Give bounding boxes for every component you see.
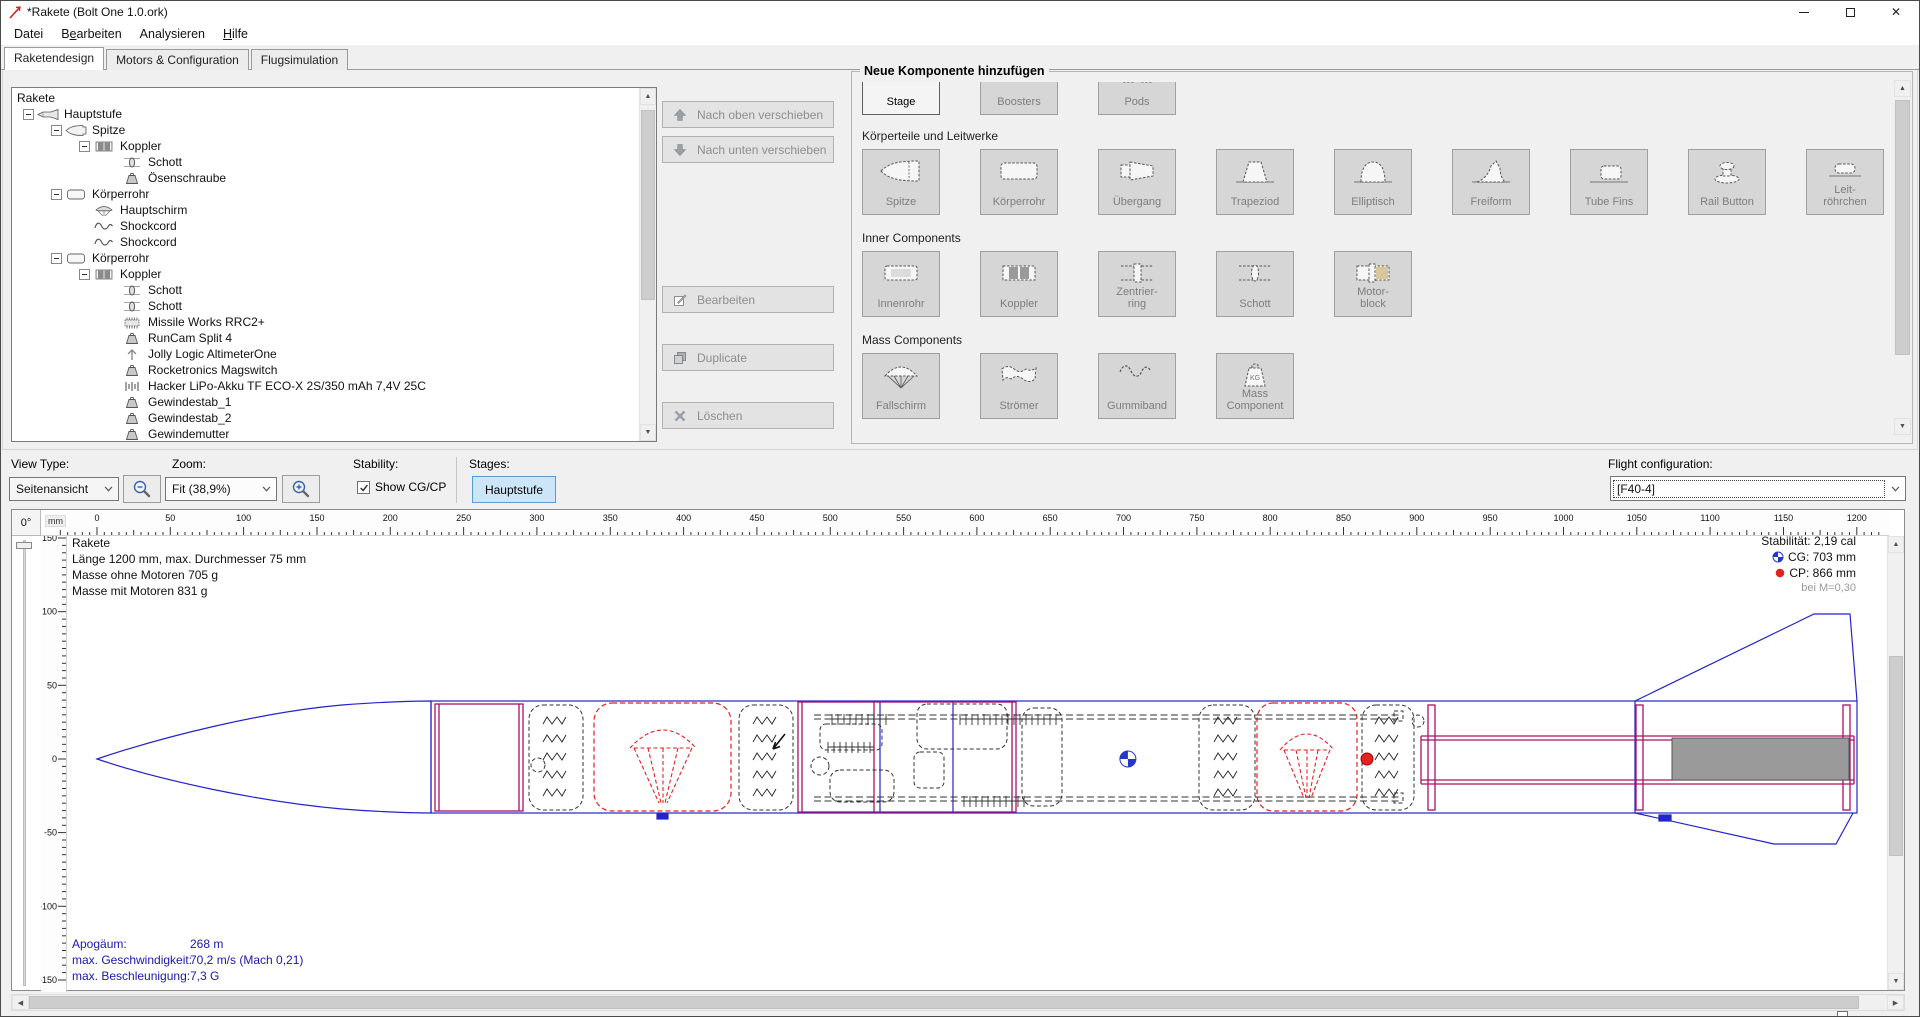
component-button-pods[interactable]: Pods (1098, 82, 1176, 115)
tree-item-gewindemutter[interactable]: Gewindemutter (13, 426, 638, 441)
openrocket-window: *Rakete (Bolt One 1.0.ork) ✕ DateiBearbe… (0, 0, 1920, 1017)
section-label-k-rperteile-und-leitwerke: Körperteile und Leitwerke (862, 129, 1890, 143)
tubefins-icon (1587, 156, 1631, 186)
stroem-icon (997, 360, 1041, 390)
rocket-info-line: Masse ohne Motoren 705 g (72, 568, 218, 582)
svg-text:150: 150 (42, 536, 57, 543)
tree-item-label: Hauptschirm (120, 203, 187, 217)
pods-icon (1115, 82, 1159, 86)
tree-item-k-rperrohr[interactable]: Körperrohr (13, 250, 638, 266)
up-icon (663, 108, 697, 122)
flight-stat-label: Apogäum: (72, 937, 127, 951)
mass-icon (121, 364, 143, 377)
component-button-label: Freiform (1471, 196, 1512, 209)
minimize-icon (1799, 12, 1809, 13)
boosters-icon (997, 82, 1041, 86)
view-type-label: View Type: (11, 457, 69, 471)
component-button-tube-fins[interactable]: Tube Fins (1570, 149, 1648, 215)
action-label: Duplicate (697, 351, 747, 365)
tree-item-schott[interactable]: Schott (13, 154, 638, 170)
svg-text:850: 850 (1336, 513, 1351, 523)
view-type-value: Seitenansicht (16, 482, 88, 496)
action-label: Nach unten verschieben (697, 143, 826, 157)
stability-value: Stabilität: 2,19 cal (1761, 534, 1856, 548)
tree-item-hauptschirm[interactable]: Hauptschirm (13, 202, 638, 218)
component-button-fallschirm[interactable]: Fallschirm (862, 353, 940, 419)
tree-item-label: Schott (148, 155, 182, 169)
close-icon: ✕ (1891, 6, 1901, 18)
tree-expander-icon[interactable] (79, 269, 90, 280)
svg-text:50: 50 (165, 513, 175, 523)
component-button-gummiband[interactable]: Gummiband (1098, 353, 1176, 419)
action-label: Nach oben verschieben (697, 108, 823, 122)
tree-item-label: Gewindemutter (148, 427, 229, 441)
mass-icon (121, 396, 143, 409)
checkbox-checked-icon (357, 481, 370, 494)
stability-label: Stability: (353, 457, 398, 471)
chevron-down-icon (262, 486, 271, 492)
component-button-koppler[interactable]: Koppler (980, 251, 1058, 317)
component-button-label: Gummiband (1107, 400, 1167, 413)
menu-datei[interactable]: Datei (5, 25, 52, 43)
zoom-label: Zoom: (172, 457, 206, 471)
cp-legend-icon (1775, 568, 1785, 578)
delete-icon (663, 409, 697, 423)
svg-text:0: 0 (52, 754, 57, 764)
horizontal-ruler: mm05010015020025030035040045050055060065… (41, 510, 1889, 536)
view-type-select[interactable]: Seitenansicht (9, 477, 119, 501)
component-button-label: Rail Button (1700, 196, 1754, 209)
cg-cp-markers (1120, 751, 1373, 767)
tree-item-hacker-lipo-akku-tf-eco-x-2s-350-mah-7-4v-25c[interactable]: Hacker LiPo-Akku TF ECO-X 2S/350 mAh 7,4… (13, 378, 638, 394)
tree-item-label: Shockcord (120, 235, 177, 249)
tab-flugsimulation[interactable]: Flugsimulation (251, 49, 348, 70)
svg-text:100: 100 (42, 607, 57, 617)
tree-item-spitze[interactable]: Spitze (13, 122, 638, 138)
koerperrohr-icon (997, 156, 1041, 186)
bodytube-icon (65, 252, 87, 265)
tab-raketendesign[interactable]: Raketendesign (4, 47, 104, 70)
tree-item-label: Koppler (120, 139, 161, 153)
maximize-icon (1846, 8, 1855, 17)
cg-legend-icon (1772, 551, 1784, 563)
tree-item-missile-works-rrc2[interactable]: Missile Works RRC2+ (13, 314, 638, 330)
svg-text:800: 800 (1263, 513, 1278, 523)
tree-scroll-down-icon[interactable]: ▼ (640, 424, 656, 441)
coupler-icon (93, 140, 115, 153)
tree-item-label: Hacker LiPo-Akku TF ECO-X 2S/350 mAh 7,4… (148, 379, 426, 393)
rocket-drawing (67, 536, 1889, 992)
shockcord-squiggles (543, 717, 1398, 796)
component-button-mass-component[interactable]: KGMass Component (1216, 353, 1294, 419)
tree-expander-icon[interactable] (51, 189, 62, 200)
tree-item-label: RunCam Split 4 (148, 331, 232, 345)
component-button-label: Tube Fins (1585, 196, 1634, 209)
mass-icon (121, 172, 143, 185)
tree-item-label: Koppler (120, 267, 161, 281)
cg-value: CG: 703 mm (1788, 550, 1856, 564)
action-duplicate-button[interactable]: Duplicate (662, 344, 834, 371)
flight-stat-value: 268 m (190, 937, 223, 951)
bulkhead-icon (121, 156, 143, 169)
gummi-icon (1115, 360, 1159, 390)
section-label-mass-components: Mass Components (862, 333, 1890, 347)
svg-text:550: 550 (896, 513, 911, 523)
mass-icon (121, 332, 143, 345)
component-button-label: Mass Component (1227, 388, 1284, 413)
zoom-in-button[interactable] (282, 475, 320, 503)
section-label-inner-components: Inner Components (862, 231, 1890, 245)
design-scroll-left-icon[interactable]: ◀ (12, 995, 29, 1010)
component-button-label: Motor- block (1357, 286, 1389, 311)
chevron-down-icon (1891, 486, 1900, 492)
stage-toggle-hauptstufe[interactable]: Hauptstufe (472, 476, 556, 503)
action-bearbeiten-button[interactable]: Bearbeiten (662, 286, 834, 313)
nosecone-icon (65, 124, 87, 137)
svg-text:0: 0 (94, 513, 99, 523)
tree-expander-icon[interactable] (23, 109, 34, 120)
mblock-icon (1351, 258, 1395, 288)
design-scroll-down-icon[interactable]: ▼ (1888, 973, 1904, 990)
uebergang-icon (1115, 156, 1159, 186)
component-button-innenrohr[interactable]: Innenrohr (862, 251, 940, 317)
tree-item-label: Körperrohr (92, 251, 149, 265)
svg-text:300: 300 (529, 513, 544, 523)
component-button-label: Trapeziod (1231, 196, 1280, 209)
tree-item-label: Schott (148, 299, 182, 313)
bulkhead-icon (121, 284, 143, 297)
zoom-out-icon (132, 479, 152, 499)
close-button[interactable]: ✕ (1873, 1, 1919, 23)
battery-icon (121, 380, 143, 393)
svg-text:-150: -150 (41, 975, 57, 985)
schottP-icon (1233, 258, 1277, 288)
zoom-out-button[interactable] (123, 475, 161, 503)
svg-text:KG: KG (1250, 375, 1260, 382)
component-button-label: Übergang (1113, 196, 1161, 209)
window-title: *Rakete (Bolt One 1.0.ork) (27, 5, 168, 19)
component-button-label: Schott (1239, 298, 1270, 311)
add-scroll-thumb[interactable] (1895, 100, 1910, 355)
tree-item-label: Gewindestab_2 (148, 411, 231, 425)
cp-value: CP: 866 mm (1789, 566, 1856, 580)
cp-marker (1361, 753, 1373, 765)
menu-bar: DateiBearbeitenAnalysierenHilfe (1, 23, 1919, 45)
svg-text:600: 600 (969, 513, 984, 523)
zoom-in-icon (291, 479, 311, 499)
tree-expander-icon[interactable] (79, 141, 90, 152)
tree-root-rakete[interactable]: Rakete (13, 90, 638, 106)
shockcord-icon (93, 236, 115, 249)
component-button-freiform[interactable]: Freiform (1452, 149, 1530, 215)
component-button-label: Zentrier- ring (1116, 286, 1158, 311)
tree-item-rocketronics-magswitch[interactable]: Rocketronics Magswitch (13, 362, 638, 378)
stages-label: Stages: (469, 457, 510, 471)
svg-text:900: 900 (1409, 513, 1424, 523)
show-cgcp-checkbox[interactable]: Show CG/CP (357, 480, 446, 494)
design-vscroll-thumb[interactable] (1889, 656, 1903, 856)
svg-text:100: 100 (236, 513, 251, 523)
tree-scrollbar[interactable]: ▲ ▼ (639, 88, 656, 441)
add-panel-title: Neue Komponente hinzufügen (860, 64, 1049, 78)
component-button-spitze[interactable]: Spitze (862, 149, 940, 215)
parachute-symbols (630, 730, 1334, 803)
tree-item-runcam-split-4[interactable]: RunCam Split 4 (13, 330, 638, 346)
railbutton-icon (1705, 156, 1749, 186)
svg-text:1050: 1050 (1627, 513, 1647, 523)
tree-item-label: Missile Works RRC2+ (148, 315, 265, 329)
tree-item-label: Rocketronics Magswitch (148, 363, 277, 377)
mass-icon (121, 428, 143, 441)
svg-text:250: 250 (456, 513, 471, 523)
flight-stat-label: max. Beschleunigung: (72, 969, 190, 983)
toolbar-divider (456, 457, 457, 503)
rocket-outline (97, 614, 1857, 844)
maximize-button[interactable] (1827, 1, 1873, 23)
bodytube-icon (65, 188, 87, 201)
design-scroll-up-icon[interactable]: ▲ (1888, 536, 1904, 553)
leitr-icon (1823, 156, 1867, 186)
action-label: Löschen (697, 409, 742, 423)
tree-item-senschraube[interactable]: Ösenschraube (13, 170, 638, 186)
tree-item-gewindestab-1[interactable]: Gewindestab_1 (13, 394, 638, 410)
svg-text:750: 750 (1189, 513, 1204, 523)
add-component-panel: Neue Komponente hinzufügen StageBoosters… (851, 71, 1913, 444)
menu-hilfe[interactable]: Hilfe (214, 25, 257, 43)
flight-config-label: Flight configuration: (1608, 457, 1713, 471)
tree-item-label: Schott (148, 283, 182, 297)
svg-text:-100: -100 (41, 901, 57, 911)
tree-item-jolly-logic-altimeterone[interactable]: Jolly Logic AltimeterOne (13, 346, 638, 362)
flight-stat-value: 7,3 G (190, 969, 219, 983)
svg-text:50: 50 (47, 680, 57, 690)
show-cgcp-label: Show CG/CP (375, 480, 446, 494)
tree-item-gewindestab-2[interactable]: Gewindestab_2 (13, 410, 638, 426)
rocket-design-view: 0° mm05010015020025030035040045050055060… (11, 509, 1905, 991)
tree-item-k-rperrohr[interactable]: Körperrohr (13, 186, 638, 202)
svg-text:200: 200 (383, 513, 398, 523)
component-button-trapeziod[interactable]: Trapeziod (1216, 149, 1294, 215)
fallsch-icon (879, 360, 923, 390)
action-l-schen-button[interactable]: Löschen (662, 402, 834, 429)
component-button-label: Stage (887, 96, 916, 109)
component-button-label: Pods (1124, 96, 1149, 109)
mass-icon (121, 412, 143, 425)
cg-marker (1120, 751, 1136, 767)
tree-item-label: Hauptstufe (64, 107, 122, 121)
svg-text:1000: 1000 (1553, 513, 1573, 523)
svg-text:500: 500 (823, 513, 838, 523)
zoom-select[interactable]: Fit (38,9%) (165, 477, 277, 501)
flight-config-select[interactable]: [F40-4] (1610, 476, 1906, 501)
tree-item-hauptstufe[interactable]: Hauptstufe (13, 106, 638, 122)
tree-item-koppler[interactable]: Koppler (13, 266, 638, 282)
mach-condition: bei M=0,30 (1801, 582, 1856, 594)
zring-icon (1115, 258, 1159, 288)
tree-item-shockcord[interactable]: Shockcord (13, 218, 638, 234)
component-button-leit-r-hrchen[interactable]: Leit- röhrchen (1806, 149, 1884, 215)
menu-bearbeiten[interactable]: Bearbeiten (52, 25, 130, 43)
svg-text:-50: -50 (44, 828, 57, 838)
flight-stat-label: max. Geschwindigkeit: (72, 953, 192, 967)
add-scroll-down-icon[interactable]: ▼ (1894, 418, 1911, 435)
component-button-label: Boosters (997, 96, 1040, 109)
app-logo-icon (7, 5, 22, 20)
spitze-icon (879, 156, 923, 186)
tree-expander-icon[interactable] (51, 253, 62, 264)
massP-icon: KG (1233, 360, 1277, 390)
tree-item-shockcord[interactable]: Shockcord (13, 234, 638, 250)
vertical-ruler: -150-100-50050100150 (41, 536, 67, 992)
motor (1672, 738, 1849, 780)
tree-item-schott[interactable]: Schott (13, 298, 638, 314)
component-button-label: Körperrohr (993, 196, 1046, 209)
cutoff-checkbox[interactable] (1837, 1011, 1848, 1017)
component-button-stage[interactable]: Stage (862, 82, 940, 115)
trapez-icon (1233, 156, 1277, 186)
rocket-info-line: Länge 1200 mm, max. Durchmesser 75 mm (72, 552, 306, 566)
title-bar: *Rakete (Bolt One 1.0.ork) ✕ (1, 1, 1919, 23)
rocket-info-line: Masse mit Motoren 831 g (72, 584, 207, 598)
component-button-rail-button[interactable]: Rail Button (1688, 149, 1766, 215)
duplicate-icon (663, 351, 697, 365)
stage-row-clipped: StageBoostersPods (862, 82, 1890, 115)
bulkhead-icon (121, 300, 143, 313)
innenrohr-icon (879, 258, 923, 288)
rotation-angle-indicator: 0° (12, 510, 41, 536)
action-nach-oben-verschieben-button[interactable]: Nach oben verschieben (662, 101, 834, 128)
minimize-button[interactable] (1781, 1, 1827, 23)
component-button-k-rperrohr[interactable]: Körperrohr (980, 149, 1058, 215)
component-button-label: Koppler (1000, 298, 1038, 311)
component-button-bergang[interactable]: Übergang (1098, 149, 1176, 215)
component-button-label: Fallschirm (876, 400, 926, 413)
design-vscrollbar[interactable]: ▲ ▼ (1887, 536, 1904, 990)
design-scroll-right-icon[interactable]: ▶ (1887, 995, 1904, 1010)
tree-scroll-thumb[interactable] (641, 110, 655, 300)
design-hscroll-thumb[interactable] (29, 996, 1859, 1009)
flight-stat-value: 70,2 m/s (Mach 0,21) (190, 953, 303, 967)
svg-text:700: 700 (1116, 513, 1131, 523)
add-scroll-up-icon[interactable]: ▲ (1894, 80, 1911, 97)
svg-text:1150: 1150 (1774, 513, 1793, 523)
component-button-boosters[interactable]: Boosters (980, 82, 1058, 115)
menu-analysieren[interactable]: Analysieren (131, 25, 214, 43)
tree-scroll-up-icon[interactable]: ▲ (640, 88, 656, 105)
kopplerP-icon (997, 258, 1041, 288)
action-nach-unten-verschieben-button[interactable]: Nach unten verschieben (662, 136, 834, 163)
tree-item-schott[interactable]: Schott (13, 282, 638, 298)
parachute-icon (93, 204, 115, 217)
chip-icon (121, 316, 143, 329)
arrowup-icon (121, 348, 143, 361)
svg-text:150: 150 (309, 513, 324, 523)
tree-item-koppler[interactable]: Koppler (13, 138, 638, 154)
tree-item-label: Körperrohr (92, 187, 149, 201)
component-button-schott[interactable]: Schott (1216, 251, 1294, 317)
component-button-str-mer[interactable]: Strömer (980, 353, 1058, 419)
rocket-info-line: Rakete (72, 536, 110, 550)
svg-text:1100: 1100 (1700, 513, 1719, 523)
svg-text:400: 400 (676, 513, 691, 523)
component-button-label: Elliptisch (1351, 196, 1394, 209)
svg-text:950: 950 (1483, 513, 1498, 523)
tree-expander-icon[interactable] (51, 125, 62, 136)
down-icon (663, 143, 697, 157)
svg-text:450: 450 (749, 513, 764, 523)
component-button-motor-block[interactable]: Motor- block (1334, 251, 1412, 317)
component-button-label: Leit- röhrchen (1823, 184, 1866, 209)
design-hscrollbar[interactable]: ◀ ▶ (11, 994, 1905, 1011)
component-button-zentrier-ring[interactable]: Zentrier- ring (1098, 251, 1176, 317)
coupler-icon (93, 268, 115, 281)
component-button-label: Strömer (999, 400, 1038, 413)
component-button-elliptisch[interactable]: Elliptisch (1334, 149, 1412, 215)
flight-config-value: [F40-4] (1613, 480, 1885, 498)
rotation-slider-handle[interactable] (16, 542, 32, 549)
component-button-label: Spitze (886, 196, 917, 209)
component-tree-panel: RaketeHauptstufeSpitzeKopplerSchottÖsens… (11, 87, 657, 442)
chevron-down-icon (104, 486, 113, 492)
shockcord-icon (93, 220, 115, 233)
tree-item-label: Spitze (92, 123, 125, 137)
tree-item-label: Gewindestab_1 (148, 395, 231, 409)
ruler-unit-label: mm (45, 515, 66, 527)
add-panel-scrollbar[interactable]: ▲ ▼ (1894, 80, 1911, 435)
rocket-icon (37, 108, 59, 121)
action-label: Bearbeiten (697, 293, 755, 307)
tree-item-label: Shockcord (120, 219, 177, 233)
tree-item-label: Jolly Logic AltimeterOne (148, 347, 277, 361)
tab-motors-configuration[interactable]: Motors & Configuration (106, 49, 249, 70)
tree-item-label: Ösenschraube (148, 171, 226, 185)
svg-text:650: 650 (1043, 513, 1058, 523)
stage-icon (879, 82, 923, 86)
svg-text:350: 350 (603, 513, 618, 523)
svg-text:1200: 1200 (1847, 513, 1867, 523)
edit-icon (663, 293, 697, 307)
component-button-label: Innenrohr (877, 298, 924, 311)
zoom-value: Fit (38,9%) (172, 482, 231, 496)
ellip-icon (1351, 156, 1395, 186)
frei-icon (1469, 156, 1513, 186)
rotation-slider-track[interactable] (23, 540, 26, 986)
